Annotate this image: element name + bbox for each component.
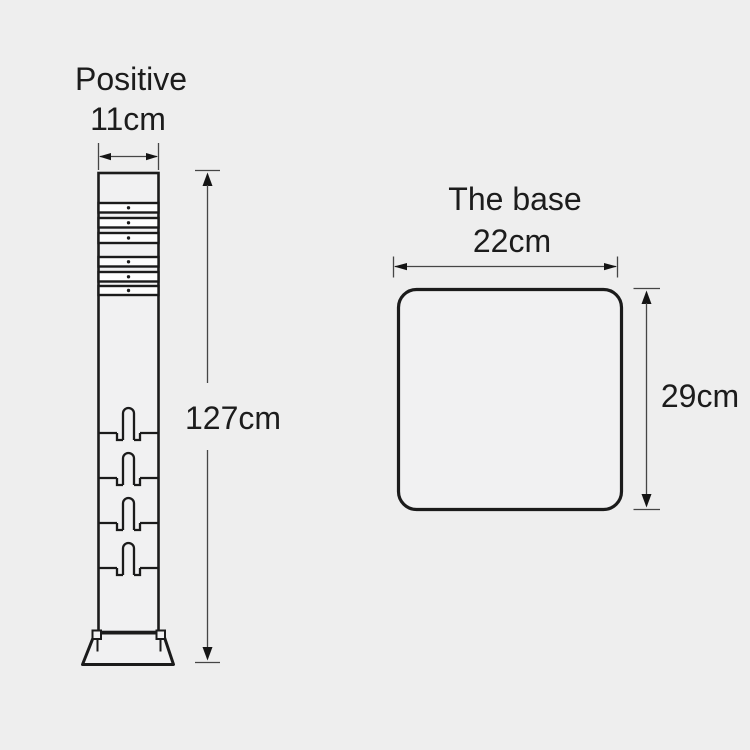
rivet-dot [127, 275, 130, 278]
post-width-dimension [99, 143, 159, 170]
rivet-dot [127, 289, 130, 292]
post-foot [83, 631, 174, 665]
base-width-dimension [394, 257, 618, 278]
arrowhead-down-icon [203, 647, 213, 661]
post-height-label: 127cm [185, 400, 281, 436]
rivet-dot [127, 260, 130, 263]
arrowhead-up-icon [642, 291, 652, 305]
arrowhead-right-icon [604, 263, 617, 270]
rivet-dot [127, 206, 130, 209]
arrowhead-left-icon [394, 263, 407, 270]
arrowhead-up-icon [203, 173, 213, 187]
post-width-label: 11cm [90, 101, 166, 137]
arrowhead-left-icon [99, 153, 111, 160]
dimension-diagram-page: Positive 11cm [0, 0, 750, 750]
rivet-dot [127, 236, 130, 239]
base-width-label: 22cm [473, 223, 551, 259]
base-height-label: 29cm [661, 378, 739, 414]
base-figure: The base 22cm 29cm [394, 181, 740, 510]
base-title: The base [448, 181, 581, 217]
foot-tab-left [93, 631, 102, 640]
post-figure: Positive 11cm [75, 61, 281, 665]
base-height-dimension [634, 289, 661, 510]
foot-tab-right [157, 631, 166, 640]
base-plate-outline [399, 290, 622, 510]
arrowhead-down-icon [642, 494, 652, 508]
post-title: Positive [75, 61, 187, 97]
rivet-dot [127, 221, 130, 224]
arrowhead-right-icon [146, 153, 158, 160]
dimension-diagram: Positive 11cm [0, 0, 750, 750]
